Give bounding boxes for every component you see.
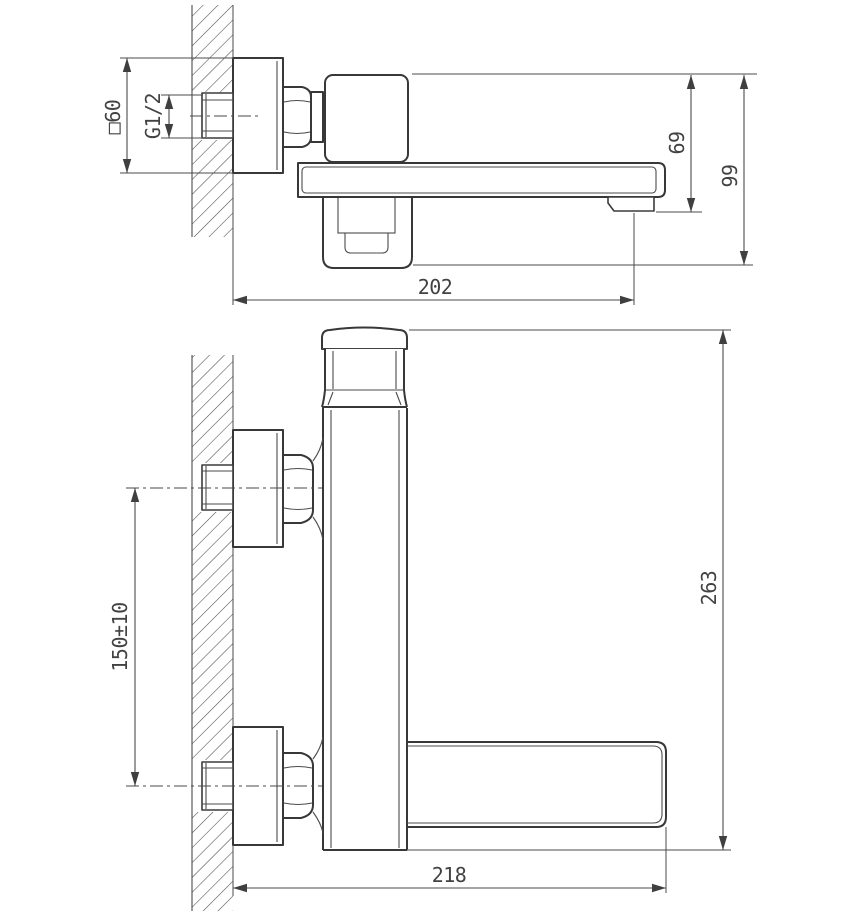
front-view: 150±10 263 218 [108,328,731,911]
technical-drawing-page: □60 G1/2 69 99 202 [0,0,846,911]
wall-hatch [192,512,233,760]
side-view: □60 G1/2 69 99 202 [101,5,757,305]
hex-nut [283,87,323,147]
dim-label-thread: G1/2 [141,93,165,139]
spout [298,163,665,197]
dim-label-flange-size: □60 [101,100,125,135]
wall-hatch [192,5,233,92]
hex-nut [283,455,313,523]
valve-body [325,75,408,162]
washer [311,92,323,142]
wall-hatch [192,140,233,237]
dim-label-body-drop: 99 [718,164,742,187]
dim-label-total-height: 263 [697,571,721,606]
wall-hatch [192,812,233,911]
wall-section-bottom [192,355,233,911]
faucet-technical-drawing: □60 G1/2 69 99 202 [0,0,846,911]
faucet-profile [190,58,665,268]
dim-label-total-reach: 218 [432,863,467,887]
dim-label-spout-drop: 69 [665,131,689,154]
handle [322,328,407,408]
wall-hatch [192,355,233,463]
wall-section-top [192,5,233,305]
dim-label-spout-reach: 202 [418,275,453,299]
dim-label-inlet-spacing: 150±10 [108,602,132,671]
outlet-nub [608,197,654,211]
diverter-housing [323,197,412,268]
